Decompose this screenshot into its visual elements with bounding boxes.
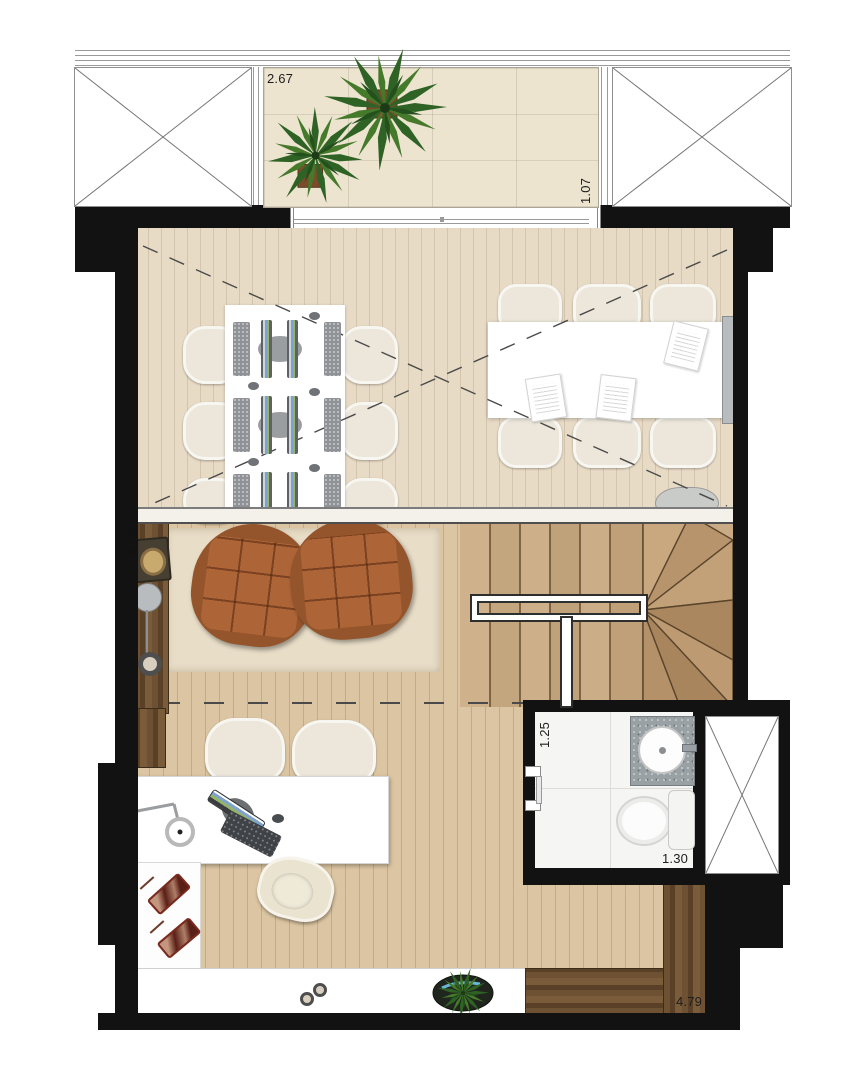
monitor-icon [287,472,298,510]
faucet-icon [682,744,697,752]
toilet-icon [616,796,672,846]
mouse-icon [309,388,320,396]
bathroom-door-leaf [536,776,542,804]
guest-chair [292,720,376,784]
monitor-icon [261,472,272,510]
wall-bottom [98,1013,740,1030]
keyboard-icon [324,398,341,452]
monitor-icon [287,320,298,378]
tile-line [610,712,611,868]
cross-icon [706,717,778,873]
monitor-icon [287,396,298,454]
monitor-icon [261,320,272,378]
cross-icon [613,68,791,206]
bowl-icon [313,983,327,997]
dim-terrace-depth: 1.07 [578,178,593,204]
stair-handrail-post [562,618,571,706]
document-icon [525,373,567,422]
dim-terrace-width: 2.67 [267,71,293,86]
keyboard-icon [233,474,250,510]
palm-plant-icon [305,28,475,198]
sink-icon [638,726,686,774]
candle-icon [139,547,167,577]
armchair-seat [299,531,403,631]
mouse-icon [248,458,259,466]
dim-bathroom-width: 1.25 [537,722,552,748]
document-icon [595,374,636,422]
desk-lamp-icon [128,796,203,851]
keyboard-icon [233,322,250,376]
wall-right [733,228,748,720]
void-right [612,67,792,207]
sink-drain [659,747,666,754]
dim-lounge-width: 4.15 [126,530,141,556]
mezzanine-railing [135,507,733,524]
toilet-tank [668,790,695,850]
decor-bowl-icon [138,652,162,676]
mouse-icon [272,814,284,823]
tile-line [535,788,693,789]
terrace-mullion [601,67,602,206]
mouse-icon [309,312,320,320]
armchair [285,514,417,644]
mouse-icon [248,382,259,390]
floor-lamp-stem [146,610,148,656]
sliding-door-handle [440,217,444,222]
void-dashed-cross [135,228,733,510]
keyboard-icon [324,322,341,376]
dim-bathroom-depth: 1.30 [662,851,688,866]
wall-right-lower [705,880,783,948]
monitor-icon [261,396,272,454]
column-left-mid [98,763,135,945]
stair-handrail [472,596,646,620]
keyboard-icon [233,398,250,452]
keyboard-icon [324,474,341,510]
potted-plant-icon [428,968,498,1016]
guest-chair [205,718,285,782]
bowl-icon [300,992,314,1006]
mouse-icon [309,464,320,472]
terrace-mullion [607,67,608,206]
cross-icon [75,68,251,206]
duct-shaft [705,716,779,874]
floor-plan: 2.67 1.07 4.15 1.25 1.30 4.79 [0,0,864,1080]
dim-studio-width: 4.79 [676,994,702,1009]
void-left [74,67,252,207]
